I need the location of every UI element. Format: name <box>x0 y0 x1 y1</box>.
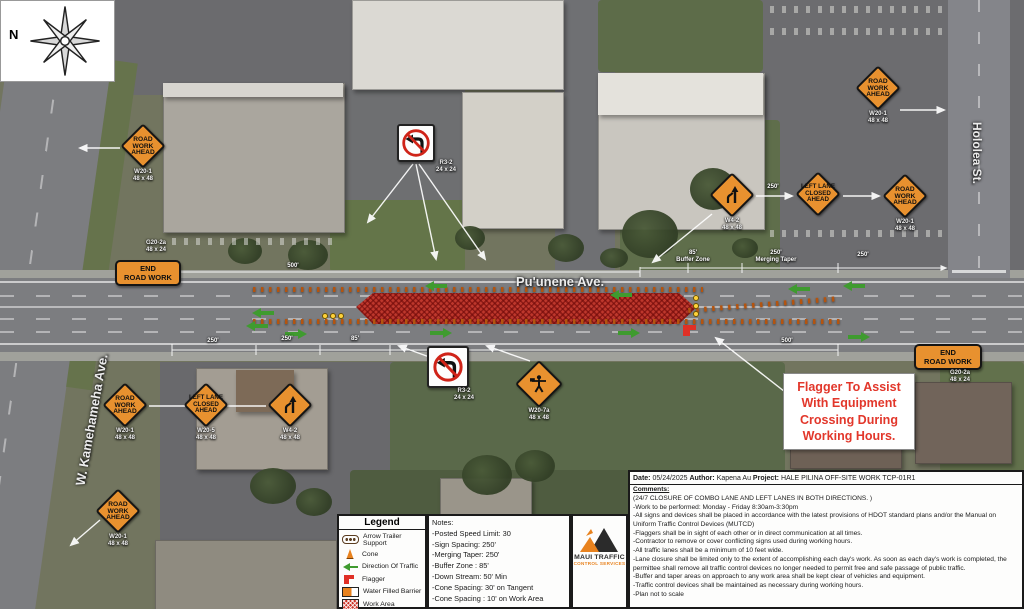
author-label: Author: <box>689 475 714 482</box>
tree <box>250 468 296 504</box>
sidewalk-south <box>0 352 1024 361</box>
comment-line: -All traffic lanes shall be a minimum of… <box>633 547 1019 556</box>
arrow-trailer-icon <box>342 535 359 545</box>
sign-text: LEFT LANE CLOSED AHEAD <box>795 171 841 217</box>
street-label-puunene: Pu'unene Ave. <box>516 274 604 289</box>
project-value: HALE PILINA OFF-SITE WORK TCP-01R1 <box>781 475 915 482</box>
comment-line: -Lane closure shall be limited only to t… <box>633 556 1019 573</box>
sign-left-lane-closed-south: LEFT LANE CLOSED AHEAD W20-5 48 x 48 <box>183 382 229 428</box>
notes-title: Notes: <box>432 518 566 529</box>
building-roof-edge <box>163 83 343 97</box>
legend-item: Water Filled Barrier <box>339 584 425 597</box>
sign-end-road-work-east: END ROAD WORK <box>914 344 982 370</box>
lane-merge-icon <box>722 185 742 205</box>
legend-label: Arrow Trailer Support <box>363 533 422 547</box>
comment-line: -Plan not to scale <box>633 591 1019 600</box>
sign-no-left-turn-south <box>427 346 469 388</box>
logo-panel: MAUI TRAFFIC CONTROL SERVICES <box>571 514 628 609</box>
note-line: -Sign Spacing: 250' <box>432 540 566 551</box>
comments-body: Comments: (24/7 CLOSURE OF COMBO LANE AN… <box>630 485 1022 600</box>
dim-label-250-ne: 250' <box>848 252 878 259</box>
comment-line: (24/7 CLOSURE OF COMBO LANE AND LEFT LAN… <box>633 495 1019 504</box>
street-label-hololea: Hololea St. <box>970 122 984 184</box>
sign-code-label: W20-1 48 x 48 <box>846 111 910 125</box>
tree <box>600 248 628 268</box>
legend-label: Flagger <box>362 576 385 583</box>
cone-row-north <box>253 287 703 292</box>
dim-label-250-gap: 250' <box>758 184 788 191</box>
dim-label-500-s: 500' <box>772 338 802 345</box>
sign-lane-merge-east: W4-2 48 x 48 <box>709 172 755 218</box>
note-line: -Cone Spacing: 30' on Tangent <box>432 583 566 594</box>
sign-text: ROAD WORK AHEAD <box>855 65 901 111</box>
dim-label-buffer: 85' Buffer Zone <box>670 250 716 264</box>
compass-rose: N <box>0 0 115 82</box>
comment-line: -Work to be performed: Monday - Friday 8… <box>633 504 1019 513</box>
comment-line: -All signs and devices shall be placed i… <box>633 512 1019 529</box>
note-line: -Merging Taper: 250' <box>432 550 566 561</box>
comment-line: -Traffic control devices shall be mainta… <box>633 582 1019 591</box>
traffic-control-plan-map: Pu'unene Ave. Hololea St. W. Kamehameha … <box>0 0 1024 609</box>
sign-road-work-ahead-nw: ROAD WORK AHEAD W20-1 48 x 48 <box>120 123 166 169</box>
sign-code-label: R3-2 24 x 24 <box>432 388 496 402</box>
legend-item: Work Area <box>339 597 425 609</box>
sign-text: ROAD WORK AHEAD <box>95 488 141 534</box>
cone-row-south <box>253 319 843 324</box>
traffic-direction-arrow <box>843 281 865 291</box>
aerial-grass <box>330 200 465 272</box>
sign-code-label: W4-2 48 x 48 <box>258 428 322 442</box>
flagger-note-callout: Flagger To Assist With Equipment Crossin… <box>783 373 915 450</box>
note-line: -Down Stream: 50' Min <box>432 572 566 583</box>
note-line: -Buffer Zone : 85' <box>432 561 566 572</box>
traffic-direction-arrow <box>618 328 640 338</box>
sign-text: ROAD WORK AHEAD <box>102 382 148 428</box>
sign-code-label: W4-2 48 x 48 <box>700 218 764 232</box>
sign-end-road-work-west: END ROAD WORK <box>115 260 181 286</box>
flagger-flag-icon <box>342 574 358 584</box>
tree <box>455 226 485 250</box>
legend-item: Arrow Trailer Support <box>339 530 425 547</box>
sign-text: LEFT LANE CLOSED AHEAD <box>183 382 229 428</box>
project-info-box: Date: 05/24/2025 Author: Kapena Au Proje… <box>628 470 1024 609</box>
tree <box>515 450 555 482</box>
sign-code-label: W20-1 48 x 48 <box>93 428 157 442</box>
legend-label: Cone <box>362 551 378 558</box>
lane-merge-icon <box>280 395 300 415</box>
logo-name: MAUI TRAFFIC <box>573 554 626 561</box>
tree <box>548 234 584 262</box>
dim-label-250-sa: 250' <box>198 338 228 345</box>
parked-cars <box>770 28 942 35</box>
notes-panel: Notes: -Posted Speed Limit: 30 -Sign Spa… <box>427 514 571 609</box>
comment-line: -Buffer and taper areas on approach to a… <box>633 573 1019 582</box>
water-barrier-icon <box>342 587 359 597</box>
cone-icon <box>342 549 358 559</box>
aerial-parking-lot <box>1008 0 1024 275</box>
building <box>915 382 1012 464</box>
aerial-grass <box>598 0 763 72</box>
tree <box>296 488 332 516</box>
traffic-direction-arrow <box>430 328 452 338</box>
traffic-direction-arrow <box>610 290 632 300</box>
comment-line: -Contractor to remove or cover conflicti… <box>633 538 1019 547</box>
traffic-direction-arrow <box>848 332 870 342</box>
legend-label: Work Area <box>363 601 395 608</box>
comment-line: -Flaggers shall be in sight of each othe… <box>633 530 1019 539</box>
arrow-trailer-marker <box>322 313 344 319</box>
legend-label: Water Filled Barrier <box>363 588 421 595</box>
parked-cars <box>770 6 942 13</box>
compass-star-icon <box>29 5 101 77</box>
flagger-icon <box>528 373 550 395</box>
sign-left-lane-closed-east: LEFT LANE CLOSED AHEAD <box>795 171 841 217</box>
comments-label: Comments: <box>633 486 1019 495</box>
traffic-direction-arrow <box>246 321 268 331</box>
dim-label-250-sb: 250' <box>272 336 302 343</box>
parked-cars <box>172 238 337 245</box>
legend-panel: Legend Arrow Trailer Support Cone Direct… <box>337 514 427 609</box>
traffic-direction-arrow <box>788 284 810 294</box>
info-header: Date: 05/24/2025 Author: Kapena Au Proje… <box>630 472 1022 485</box>
work-area-icon <box>342 599 359 609</box>
author-value: Kapena Au <box>717 475 751 482</box>
sign-code-label: W20-1 48 x 48 <box>111 169 175 183</box>
legend-label: Direction Of Traffic <box>362 563 418 570</box>
dim-label-taper: 250' Merging Taper <box>748 250 804 264</box>
legend-item: Direction Of Traffic <box>339 559 425 572</box>
sign-no-left-turn-north <box>397 124 435 162</box>
sign-text: ROAD WORK AHEAD <box>882 173 928 219</box>
legend-title: Legend <box>339 516 425 530</box>
legend-item: Flagger <box>339 572 425 585</box>
maui-traffic-logo-icon <box>578 524 622 554</box>
dim-label-85-s: 85' <box>340 336 370 343</box>
sign-road-work-ahead-sw2: ROAD WORK AHEAD W20-1 48 x 48 <box>95 488 141 534</box>
sign-road-work-ahead-ne: ROAD WORK AHEAD W20-1 48 x 48 <box>855 65 901 111</box>
project-label: Project: <box>753 475 779 482</box>
sign-road-work-ahead-sw: ROAD WORK AHEAD W20-1 48 x 48 <box>102 382 148 428</box>
no-left-turn-icon <box>432 351 464 383</box>
sign-lane-merge-south: W4-2 48 x 48 <box>267 382 313 428</box>
building <box>155 540 337 609</box>
sign-text: ROAD WORK AHEAD <box>120 123 166 169</box>
flagger-marker <box>683 324 701 337</box>
traffic-direction-arrow <box>425 281 447 291</box>
aerial-parking-lot <box>115 0 365 95</box>
compass-north-label: N <box>9 27 18 42</box>
traffic-direction-arrow <box>252 308 274 318</box>
building <box>163 83 345 233</box>
sign-flagger-ahead: W20-7a 48 x 48 <box>515 360 563 408</box>
note-line: -Cone Spacing : 10' on Work Area <box>432 594 566 605</box>
sign-code-label: R3-2 24 x 24 <box>414 160 478 174</box>
date-value: 05/24/2025 <box>652 475 687 482</box>
note-line: -Posted Speed Limit: 30 <box>432 529 566 540</box>
date-label: Date: <box>633 475 651 482</box>
sign-code-label: W20-5 48 x 48 <box>174 428 238 442</box>
dim-label-500: 500' <box>278 263 308 270</box>
sign-code-label: W20-1 48 x 48 <box>873 219 937 233</box>
sign-code-label: W20-1 48 x 48 <box>86 534 150 548</box>
sign-road-work-ahead-east2: ROAD WORK AHEAD W20-1 48 x 48 <box>882 173 928 219</box>
sign-code-label: G20-2a 48 x 24 <box>124 240 188 254</box>
logo-subname: CONTROL SERVICES <box>573 561 626 566</box>
no-left-turn-icon <box>401 128 431 158</box>
tree <box>462 455 512 495</box>
sign-code-label: W20-7a 48 x 48 <box>507 408 571 422</box>
building <box>352 0 564 90</box>
sign-code-label: G20-2a 48 x 24 <box>928 370 992 384</box>
direction-arrow-icon <box>342 562 358 572</box>
building-roof-edge <box>598 73 763 115</box>
arrow-trailer-marker <box>693 295 699 317</box>
legend-item: Cone <box>339 547 425 560</box>
